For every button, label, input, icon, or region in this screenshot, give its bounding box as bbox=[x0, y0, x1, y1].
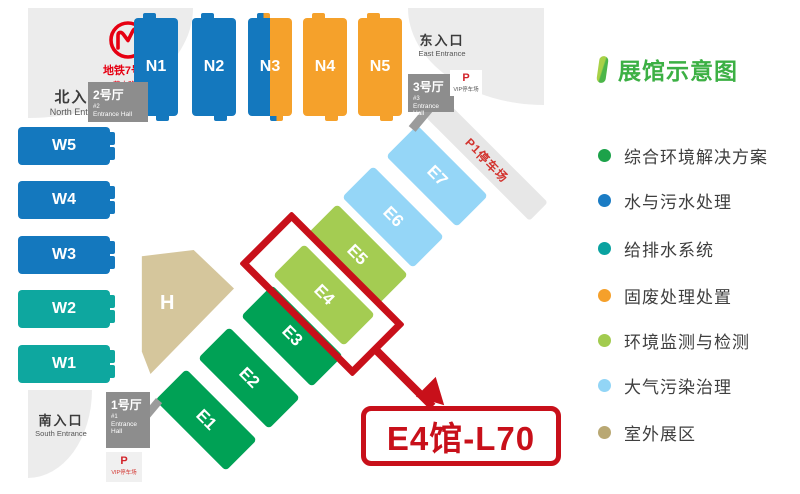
hall-w2: W2 bbox=[18, 290, 110, 328]
legend-dot-icon bbox=[598, 289, 611, 302]
legend-title-text: 展馆示意图 bbox=[618, 52, 738, 86]
hall-w5: W5 bbox=[18, 127, 110, 165]
legend-item-monitoring: 环境监测与检测 bbox=[598, 328, 750, 353]
entrance-hall-1-box: 1号厅 #1 Entrance Hall bbox=[106, 392, 150, 448]
vip-parking-south: P VIP停车场 bbox=[106, 452, 142, 482]
legend-dot-icon bbox=[598, 334, 611, 347]
legend-dot-icon bbox=[598, 194, 611, 207]
entrance-hall-2-box: 2号厅 #2 Entrance Hall bbox=[88, 82, 148, 122]
outdoor-area-h-label: H bbox=[160, 292, 174, 315]
south-entrance-label: 南入口 South Entrance bbox=[26, 410, 96, 438]
legend-dot-icon bbox=[598, 242, 611, 255]
hall-n3: N3 bbox=[248, 18, 292, 116]
hall-n2: N2 bbox=[192, 18, 236, 116]
legend-item-outdoor: 室外展区 bbox=[598, 420, 696, 445]
legend-dot-icon bbox=[598, 149, 611, 162]
legend-dot-icon bbox=[598, 426, 611, 439]
vip-parking-east: P VIP停车场 bbox=[450, 70, 482, 96]
legend-title-bar-icon bbox=[596, 55, 609, 83]
legend-title: 展馆示意图 bbox=[598, 52, 738, 86]
hall-w1: W1 bbox=[18, 345, 110, 383]
east-entrance-label: 东入口 East Entrance bbox=[410, 30, 474, 58]
legend-item-drainage: 给排水系统 bbox=[598, 236, 714, 261]
hall-n5: N5 bbox=[358, 18, 402, 116]
legend-item-comprehensive: 综合环境解决方案 bbox=[598, 143, 768, 168]
hall-w3: W3 bbox=[18, 236, 110, 274]
hall-w4: W4 bbox=[18, 181, 110, 219]
parking-icon: P bbox=[450, 73, 482, 84]
legend-item-solid-waste: 固废处理处置 bbox=[598, 283, 732, 308]
parking-icon: P bbox=[106, 456, 142, 467]
exhibition-hall-map: 地铁7号线 花木路站 Metro Line 7 Huamu Rd. Statio… bbox=[0, 0, 800, 494]
hall-n4: N4 bbox=[303, 18, 347, 116]
entrance-hall-3-box: 3号厅 #3 Entrance Hall bbox=[408, 74, 454, 112]
legend-item-water: 水与污水处理 bbox=[598, 188, 732, 213]
legend-item-air-pollution: 大气污染治理 bbox=[598, 373, 732, 398]
booth-callout-label: E4馆-L70 bbox=[361, 406, 561, 466]
legend-dot-icon bbox=[598, 379, 611, 392]
